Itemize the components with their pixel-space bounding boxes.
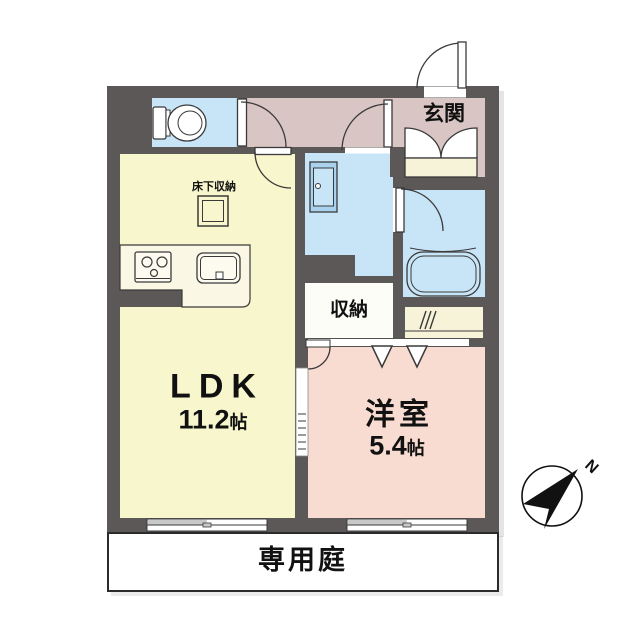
compass-circle: [522, 466, 582, 526]
entrance-door-leaf: [458, 42, 466, 88]
room-closet: [405, 307, 483, 338]
ldk-size: 11.2帖: [162, 406, 264, 436]
room-washroom-extension: [355, 255, 393, 276]
floor-plan-canvas: 玄関 収納 床下収納 LDK 11.2帖 洋室 5.4帖 専用庭: [0, 0, 640, 640]
wall-stub-entrance: [390, 147, 405, 177]
storage-label: 収納: [330, 301, 368, 322]
private-garden-label: 専用庭: [258, 546, 348, 576]
room-bathroom: [403, 190, 485, 297]
compass-needle-icon: [523, 469, 578, 529]
western-room-size: 5.4帖: [361, 432, 433, 462]
room-toilet: [152, 98, 238, 147]
underfloor-storage-label: 床下収納: [192, 181, 236, 193]
entrance-label: 玄関: [423, 102, 465, 125]
entrance-door-swing-arc: [417, 43, 462, 88]
wall-stub-kitchen: [120, 288, 182, 307]
compass: N: [522, 457, 601, 529]
room-hallway: [247, 98, 405, 147]
ldk-name: LDK: [162, 368, 264, 405]
room-ldk: [120, 154, 295, 518]
western-room-label: 洋室 5.4帖: [361, 399, 433, 462]
north-label: N: [581, 457, 601, 477]
ldk-label: LDK 11.2帖: [162, 368, 264, 435]
room-washroom: [305, 153, 393, 255]
western-room-name: 洋室: [361, 399, 433, 432]
